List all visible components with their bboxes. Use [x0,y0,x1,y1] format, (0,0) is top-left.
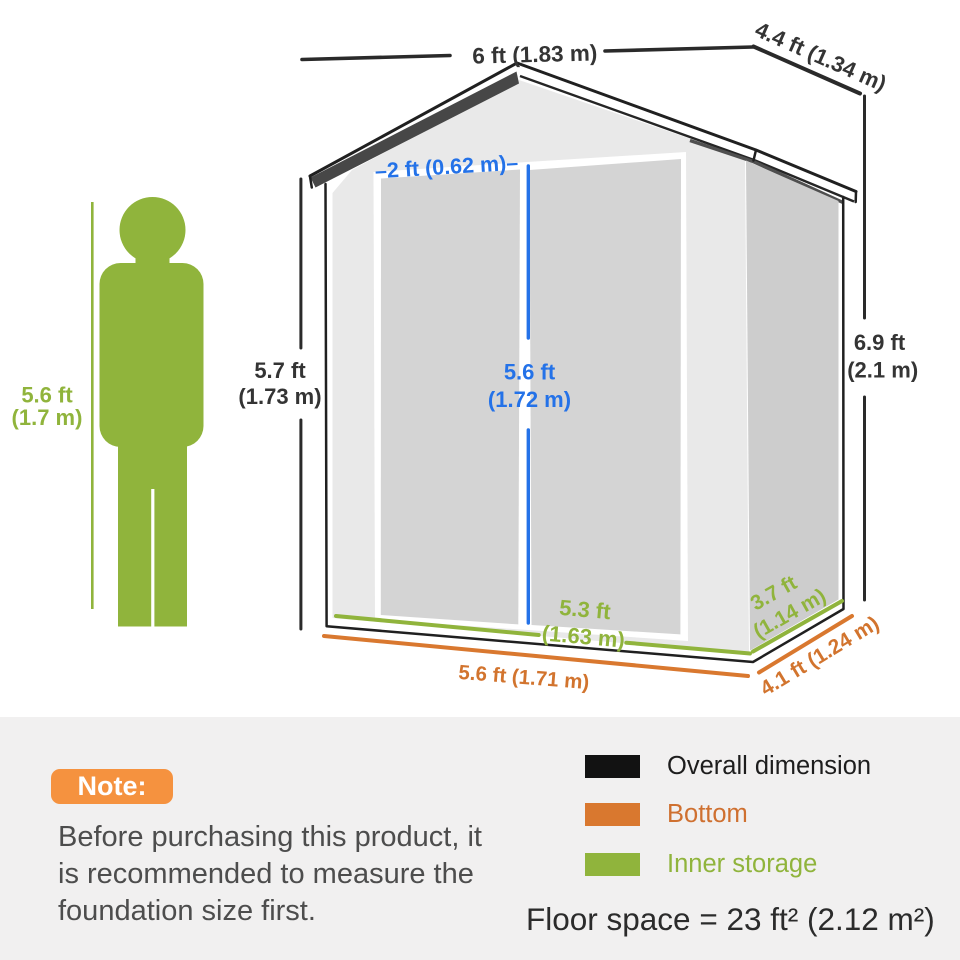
svg-text:5.6 ft: 5.6 ft [504,360,556,385]
svg-text:(1.73 m): (1.73 m) [238,384,321,409]
svg-text:(1.7 m): (1.7 m) [12,405,83,430]
svg-text:6.9 ft: 6.9 ft [854,330,906,355]
svg-text:5.6 ft: 5.6 ft [21,383,73,408]
svg-text:5.6 ft (1.71 m): 5.6 ft (1.71 m) [458,661,590,694]
svg-text:5.3 ft: 5.3 ft [558,595,612,624]
svg-text:6 ft (1.83 m): 6 ft (1.83 m) [472,40,598,68]
svg-text:(1.72 m): (1.72 m) [488,387,571,412]
svg-text:5.7 ft: 5.7 ft [254,358,306,383]
svg-text:(2.1 m): (2.1 m) [847,358,918,383]
